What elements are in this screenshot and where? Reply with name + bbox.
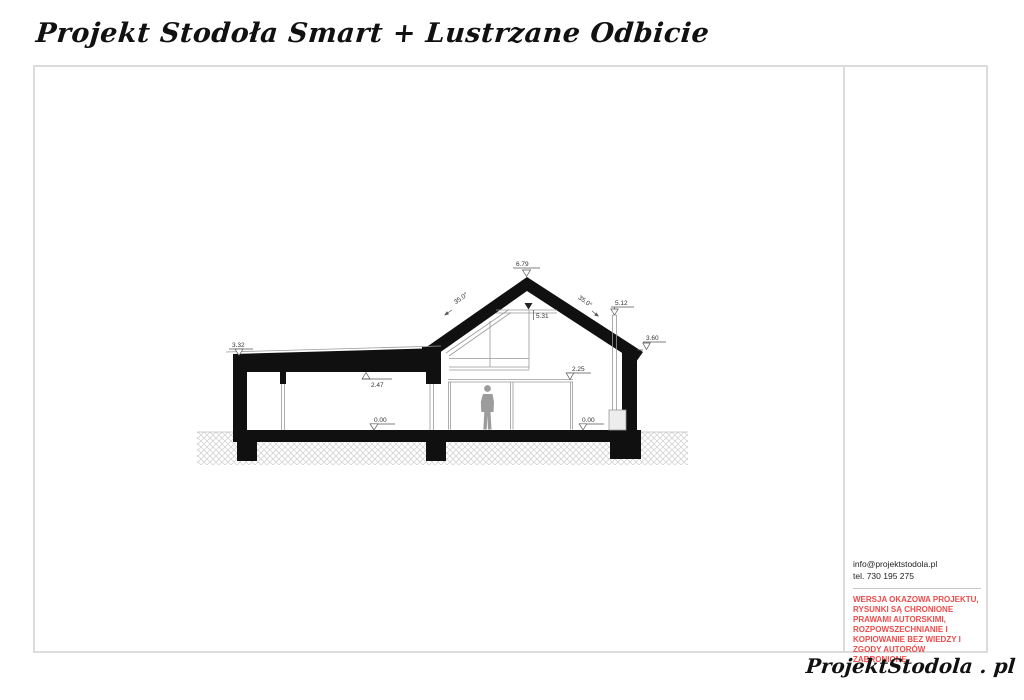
- level-marker-collar-beam: 5.31: [525, 303, 550, 320]
- chimney-flue: [613, 315, 617, 410]
- level-marker-floor-left: 0.00: [370, 417, 395, 430]
- level-value: 6.79: [516, 261, 529, 268]
- level-marker-chimney-top: 5.12: [611, 300, 634, 315]
- level-marker-left-parapet: 3.32: [229, 342, 253, 356]
- level-value: 3.60: [646, 335, 659, 342]
- sidebar-info: info@projektstodola.pl tel. 730 195 275 …: [853, 558, 983, 665]
- level-value: 2.47: [371, 382, 384, 389]
- middle-wall-door: [430, 384, 434, 430]
- brand-logo: ProjektStodola . pl: [805, 654, 989, 678]
- level-marker-ceiling: 2.47: [362, 373, 392, 390]
- level-value: 3.32: [232, 342, 245, 349]
- level-value: 5.12: [615, 300, 628, 307]
- level-marker-door-head: 2.25: [566, 366, 591, 380]
- level-marker-floor-right: 0.00: [579, 417, 604, 430]
- person-figure: [481, 385, 494, 429]
- level-value: 5.31: [536, 313, 549, 320]
- level-value: 2.25: [572, 366, 585, 373]
- level-value: 0.00: [374, 417, 387, 424]
- pitch-value: 35.0°: [577, 294, 594, 310]
- fireplace: [609, 410, 626, 430]
- level-marker-ridge: 6.79: [513, 261, 540, 277]
- contact-email: info@projektstodola.pl: [853, 558, 983, 570]
- interior-partition: [282, 384, 285, 430]
- contact-phone: tel. 730 195 275: [853, 570, 983, 582]
- level-value: 0.00: [582, 417, 595, 424]
- level-marker-right-eave: 3.60: [637, 335, 666, 350]
- roof-pitch-left-label: 35.0°: [444, 290, 470, 315]
- pitch-value: 35.0°: [452, 290, 469, 306]
- sidebar-divider: [853, 588, 981, 589]
- sliding-door: [448, 380, 573, 430]
